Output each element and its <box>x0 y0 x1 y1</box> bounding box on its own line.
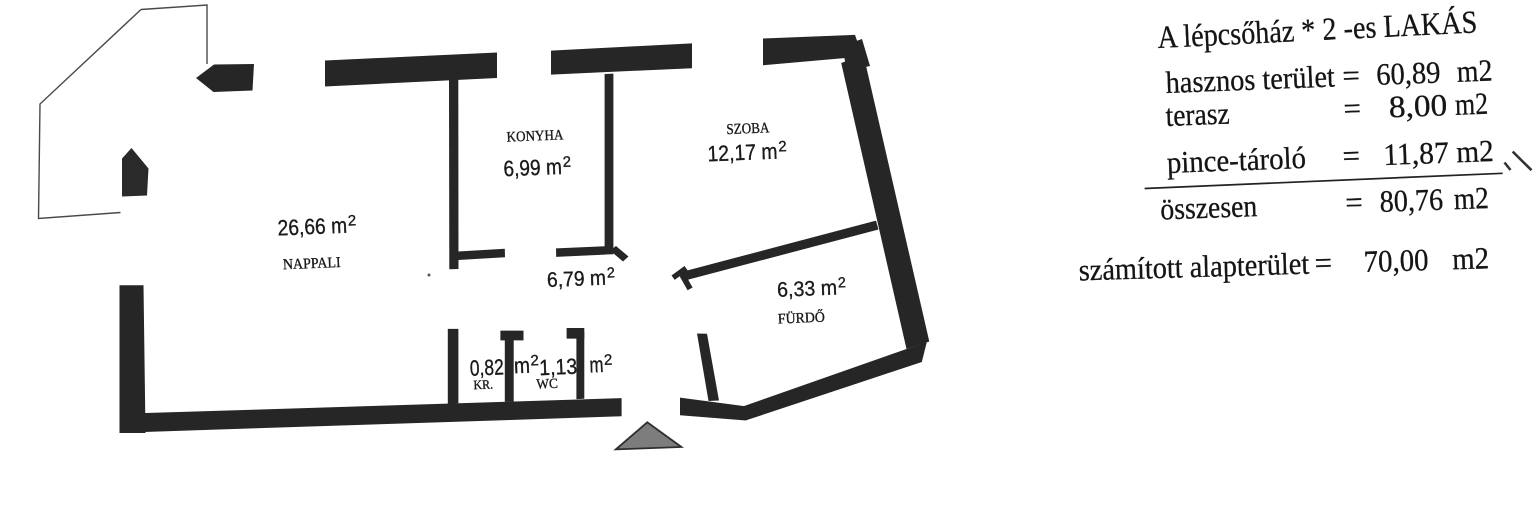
svg-text:SZOBA: SZOBA <box>726 120 770 138</box>
svg-text:80,76: 80,76 <box>1379 182 1444 219</box>
svg-text:m: m <box>589 352 604 378</box>
svg-text:12,17 m: 12,17 m <box>707 139 778 167</box>
svg-text:2: 2 <box>348 212 357 229</box>
svg-text:=: = <box>1314 245 1333 281</box>
svg-text:NAPPALI: NAPPALI <box>283 255 341 273</box>
svg-text:=: = <box>1343 91 1362 127</box>
svg-text:1,13: 1,13 <box>539 354 578 381</box>
svg-text:m2: m2 <box>1454 86 1488 122</box>
svg-text:A lépcsőház * 2 -es LAKÁS: A lépcsőház * 2 -es LAKÁS <box>1157 3 1478 55</box>
svg-text:m2: m2 <box>1453 180 1489 216</box>
svg-text:m2: m2 <box>1456 133 1495 169</box>
svg-text:számított alapterület: számított alapterület <box>1078 246 1310 288</box>
svg-text:60,89: 60,89 <box>1376 54 1441 91</box>
svg-text:6,79 m: 6,79 m <box>547 267 607 292</box>
svg-text:pince-tároló: pince-tároló <box>1166 140 1306 180</box>
svg-text:terasz: terasz <box>1165 96 1230 133</box>
svg-text:m2: m2 <box>1456 52 1493 88</box>
svg-text:2: 2 <box>606 265 615 281</box>
svg-text:m2: m2 <box>1452 240 1490 276</box>
svg-text:FÜRDŐ: FÜRDŐ <box>777 309 825 328</box>
svg-text:KONYHA: KONYHA <box>506 127 564 145</box>
svg-text:KR.: KR. <box>473 377 493 393</box>
svg-text:6,33 m: 6,33 m <box>777 277 838 302</box>
svg-text:m: m <box>513 353 530 379</box>
svg-text:2: 2 <box>604 352 613 369</box>
svg-text:2: 2 <box>562 154 571 171</box>
svg-text:2: 2 <box>838 275 847 291</box>
svg-text:hasznos terület: hasznos terület <box>1165 59 1336 100</box>
svg-text:2: 2 <box>778 138 787 155</box>
svg-text:=: = <box>1342 58 1361 94</box>
svg-text:26,66 m: 26,66 m <box>277 213 347 241</box>
svg-text:70,00: 70,00 <box>1363 242 1429 279</box>
svg-text:6,99 m: 6,99 m <box>503 154 562 181</box>
svg-text:WC: WC <box>536 377 558 393</box>
svg-text:összesen: összesen <box>1160 188 1259 226</box>
svg-text:11,87: 11,87 <box>1383 135 1450 172</box>
svg-text:8,00: 8,00 <box>1388 87 1448 124</box>
svg-text:=: = <box>1345 184 1364 220</box>
svg-text:=: = <box>1342 138 1361 174</box>
